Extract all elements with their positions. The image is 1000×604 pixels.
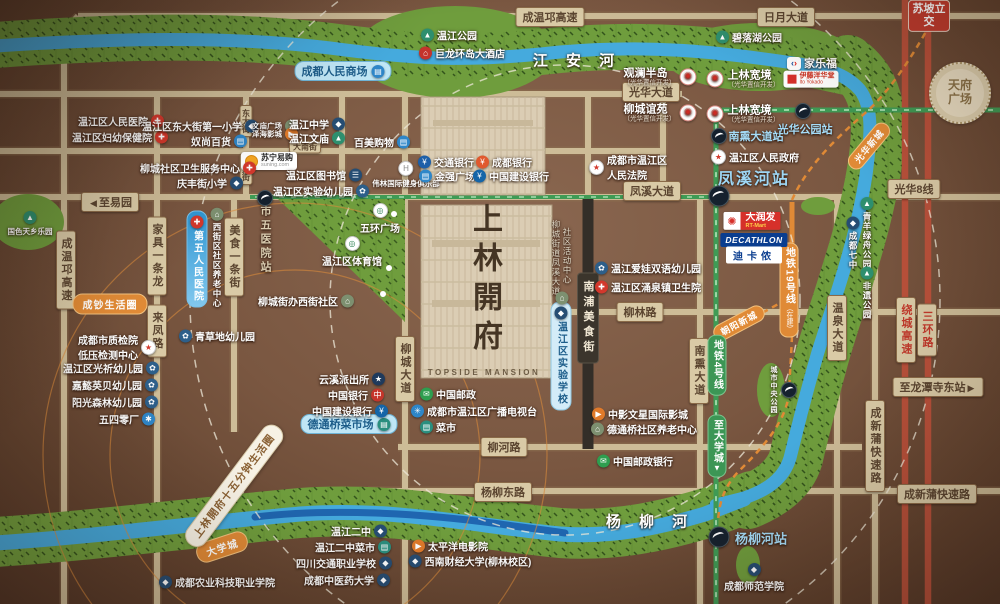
ccb-icon: ¥ <box>473 170 486 183</box>
road-fengxi-avenue: 凤溪大道 <box>623 181 681 201</box>
yunxi-police-station: 云溪派出所★ <box>319 372 385 387</box>
road-raocheng-expressway: 绕城高速 <box>896 297 916 363</box>
road-nanxun-avenue: 南熏大道 <box>689 338 709 404</box>
cdbank-icon: ¥ <box>476 156 489 169</box>
school-icon: ◆ <box>409 555 422 568</box>
river-yangliu-label: 杨 柳 河 <box>606 511 694 532</box>
chengdu-renmin-mall: 成都人民商场▤ <box>295 61 392 81</box>
kind-icon: ✿ <box>145 379 158 392</box>
decathlon: DECATHLON <box>720 233 787 247</box>
wenjiang-park: ▲温江公园 <box>421 28 477 43</box>
down-arrow-icon: ▼ <box>713 464 721 473</box>
metro-icon-fengxihe <box>709 186 730 207</box>
gov-icon: ★ <box>711 150 726 165</box>
yongquan-health-center: ✚温江区涌泉镇卫生院 <box>595 280 701 295</box>
guanlan-peninsula: 观澜半岛（光华置信开发）✺ <box>624 67 697 86</box>
wuhuan-square: ◎五环广场 <box>360 203 400 235</box>
wenjiang-no2-market: 温江二中菜市▤ <box>315 540 391 555</box>
school-icon: ◆ <box>377 574 390 587</box>
metro-icon-guanghua-park <box>795 103 811 119</box>
school-icon: ◆ <box>748 563 761 576</box>
julong-hotel: ⌂巨龙环岛大酒店 <box>419 46 505 61</box>
nushang-dept-store: 奴尚百货▤ <box>191 134 247 149</box>
river-jiangan-label: 江 安 河 <box>533 50 621 71</box>
fengxi-community-center-2: 社区活动中心 <box>561 228 573 285</box>
park-icon: ▲ <box>716 31 729 44</box>
china-post-bank: ✉中国邮政银行 <box>597 454 673 469</box>
kind-icon: ✿ <box>595 262 608 275</box>
fengxi-community-icon: ⌂ <box>556 292 569 305</box>
metro-line19-label: 地铁19号线（在建） <box>780 242 799 337</box>
ccb-icon: ¥ <box>375 405 388 418</box>
jiayi-yingbei-kindergarten: 嘉懿英贝幼儿园✿ <box>72 378 158 393</box>
map-canvas: 成温邛高速日月大道光华大道大南街凤溪大道光华8线柳林路柳河路杨柳东路成新蒲快速路… <box>0 0 1000 604</box>
road-guanghua-line8: 光华8线 <box>887 179 940 199</box>
sunshine-forest-kindergarten: 阳光森林幼儿园✿ <box>72 395 158 410</box>
library-icon: ☰ <box>349 169 362 182</box>
metro-icon-unnamed <box>781 382 797 398</box>
wenjiang-gymnasium: ◎温江区体育馆 <box>322 236 382 268</box>
feiyi-park: ▲非遗公园 <box>861 267 874 320</box>
chengdu-normal-university: ◆成都师范学院 <box>724 563 784 593</box>
detongqiao-elderly-center: ⌂德通桥社区养老中心 <box>591 422 697 437</box>
school-icon: ◆ <box>555 307 568 320</box>
road-chengxinpu-expressway-v: 成新蒲快速路 <box>865 400 885 492</box>
dikanon: 迪卡侬 <box>726 247 782 264</box>
rt-mart-logo-icon: ✺ <box>724 212 741 230</box>
dongdajie-first-primary: 温江区东大街第一小学◆ <box>142 119 258 134</box>
wenjiang-experimental-kindergarten: 温江区实验幼儿园✿ <box>273 184 369 199</box>
station-nanxun-avenue: 南熏大道站 <box>729 128 784 144</box>
qingfengjie-primary: 庆丰街小学◆ <box>177 176 243 191</box>
shop-icon: ▤ <box>372 65 385 78</box>
post-icon: ✉ <box>420 388 433 401</box>
road-chengwenqiong-top: 成温邛高速 <box>516 7 585 27</box>
wenjiang-court: ★成都市温江区 人民法院 <box>589 152 667 182</box>
kind-icon: ✿ <box>145 396 158 409</box>
gym-icon: H <box>399 161 414 176</box>
to-daxuecheng: 至大学城▼ <box>708 415 727 478</box>
qingyang-lvzhou-park: ▲青羊绿舟公园 <box>861 197 874 269</box>
rt-mart: ✺大润发RT-Mart <box>724 212 781 230</box>
carrefour-logo-icon: ‹› <box>791 59 797 68</box>
liucheng-health-center: 柳城社区卫生服务中心✚ <box>140 161 256 176</box>
wenjiang-middle-school: 温江中学◆ <box>289 117 345 132</box>
factory-540: 五四零厂✱ <box>99 412 155 427</box>
station-guanghua-park: 光华公园站 <box>778 121 833 137</box>
shop-icon: ▤ <box>419 170 432 183</box>
metro-line4-label: 地铁4号线 <box>708 335 727 396</box>
school-icon: ◆ <box>374 525 387 538</box>
station-shiwu-hospital: 市五医院站 <box>257 205 273 275</box>
project-name: 上林開府TOPSIDE MANSION <box>428 203 540 377</box>
bank-of-china: 中国银行中 <box>328 388 384 403</box>
chengdu-agri-vocational: ◆成都农业科技职业学院 <box>159 575 275 590</box>
tianfu-square: 天府广场 <box>929 62 991 124</box>
school-icon: ◆ <box>332 118 345 131</box>
boc-icon: 中 <box>371 389 384 402</box>
metro-icon-shiwu <box>257 190 273 206</box>
label-layer: 成温邛高速日月大道光华大道大南街凤溪大道光华8线柳林路柳河路杨柳东路成新蒲快速路… <box>0 0 1000 604</box>
quality-inspection-center: 成都市质检院 低压检测中心★ <box>78 332 156 362</box>
hospital-icon: ✚ <box>191 216 204 229</box>
rings-icon: ◎ <box>373 203 388 218</box>
wenjiang-tv-station: ✳成都市温江区广播电视台 <box>411 404 537 419</box>
school-icon: ◆ <box>379 557 392 570</box>
metro-icon-yangliuhe <box>709 527 730 548</box>
kind-icon: ✿ <box>146 362 159 375</box>
school-icon: ◆ <box>847 217 860 230</box>
road-liulin-road: 柳林路 <box>617 302 664 322</box>
xijie-elderly-center: ⌂西街区社区养老中心 <box>211 208 224 309</box>
right-arrow-icon: ▶ <box>968 383 975 393</box>
park-icon: ▲ <box>861 267 874 280</box>
road-liuhe-road: 柳河路 <box>481 437 528 457</box>
hospital-icon: ✚ <box>595 281 608 294</box>
zhongying-wenxing-cinema: ▶中影文星国际影城 <box>592 407 688 422</box>
ccb-north: ¥中国建设银行 <box>473 169 549 184</box>
police-icon: ★ <box>372 373 385 386</box>
wenjiang-no2-middle: 温江二中◆ <box>331 524 387 539</box>
comm-icon: ⌂ <box>211 208 224 221</box>
park-icon: ▲ <box>421 29 434 42</box>
comm-icon: ⌂ <box>591 423 604 436</box>
chengdu-no7-school: ◆成都七中 <box>847 217 860 270</box>
fifth-peoples-hospital: ✚第五人民医院 <box>187 211 208 308</box>
road-meishi-street: 美食一条街 <box>224 218 244 297</box>
tv-icon: ✳ <box>411 405 424 418</box>
park-icon: ▲ <box>332 132 345 145</box>
road-liucheng-avenue: 柳城大道 <box>395 336 415 402</box>
cinema-icon: ▶ <box>412 540 425 553</box>
jinqiang-plaza: ▤金强广场 <box>419 169 475 184</box>
qingcaodi-kindergarten: ✿青草地幼儿园 <box>179 329 255 344</box>
swufe-liulin-campus: ◆西南财经大学(柳林校区) <box>409 554 532 569</box>
school-icon: ◆ <box>230 177 243 190</box>
supo-interchange: 苏坡立交 <box>908 0 950 32</box>
hotel-icon: ⌂ <box>419 47 432 60</box>
wenjiang-library: 温江区图书馆☰ <box>286 168 362 183</box>
road-to-longtansi-east: 至龙潭寺东站▶ <box>893 377 984 397</box>
chengdu-tcm-university: 成都中医药大学◆ <box>304 573 390 588</box>
rings-icon: ◎ <box>345 236 360 251</box>
baimei-shopping: 百美购物▤ <box>354 135 410 150</box>
kind-icon: ✿ <box>179 330 192 343</box>
guose-tianxiang-park: ▲国色天乡乐园 <box>8 211 53 237</box>
court-icon: ★ <box>589 160 604 175</box>
market-icon: ▤ <box>378 418 391 431</box>
liucheng-yiyuan: 柳城谊苑（光华置信开发）✺ <box>624 103 697 122</box>
market-icon: ▤ <box>378 541 391 554</box>
station-yangliuhe: 杨柳河站 <box>735 529 787 548</box>
cinema-icon: ▶ <box>592 408 605 421</box>
shanglin-kuanjing-2: ✺上林宽境（光华置信开发） <box>707 104 780 123</box>
post-icon: ✉ <box>597 455 610 468</box>
road-riyue-avenue: 日月大道 <box>757 7 815 27</box>
china-post: ✉中国邮政 <box>420 387 476 402</box>
ccb-south: 中国建设银行¥ <box>312 404 388 419</box>
city-central-park: 城市中央公园 <box>768 366 778 414</box>
road-jiaju-street: 家具一条龙 <box>147 217 167 296</box>
station-fengxihe: 凤溪河站 <box>718 165 790 189</box>
park-icon: ▲ <box>861 197 874 210</box>
guangqi-kindergarten: 温江区光祈幼儿园✿ <box>63 361 159 376</box>
bank-of-communications: ¥交通银行 <box>418 155 474 170</box>
road-to-yiyuan: ◀至易园 <box>81 192 139 212</box>
shop-icon: ▤ <box>397 136 410 149</box>
guanghua-zhixin-logo-icon: ✺ <box>707 70 724 87</box>
caishi-market: ▤菜市 <box>420 420 456 435</box>
carrefour: ‹›家乐福 <box>787 55 837 71</box>
metro-icon-nanxun <box>711 128 727 144</box>
left-arrow-icon: ◀ <box>90 198 97 208</box>
comm-icon: ⌂ <box>341 295 354 308</box>
biluohu-park: ▲碧落湖公园 <box>716 30 782 45</box>
ito-yokado: 伊藤洋华堂Ito Yokado <box>784 71 839 88</box>
chengchao-life-circle: 成钞生活圈 <box>73 294 148 315</box>
pacific-cinema: ▶太平洋电影院 <box>412 539 488 554</box>
road-yangliu-east-road: 杨柳东路 <box>474 482 532 502</box>
kind-icon: ✿ <box>356 185 369 198</box>
road-chengxinpu-expressway-h: 成新蒲快速路 <box>897 484 977 504</box>
wenjiang-government: ★温江区人民政府 <box>711 150 799 165</box>
shanglin-kuanjing-1: ✺上林宽境（光华置信开发） <box>707 69 780 88</box>
guanghua-zhixin-logo-icon: ✺ <box>680 104 697 121</box>
aiwa-bilingual-kindergarten: ✿温江爱娃双语幼儿园 <box>595 261 701 276</box>
bocom-icon: ¥ <box>418 156 431 169</box>
market-icon: ▤ <box>420 421 433 434</box>
road-wenquan-avenue: 温泉大道 <box>827 295 847 361</box>
ito-yokado-logo-icon <box>788 75 797 84</box>
sichuan-comm-vocational: 四川交通职业学校◆ <box>296 556 392 571</box>
school-icon: ◆ <box>159 576 172 589</box>
factory-icon: ✱ <box>142 413 155 426</box>
guanghua-new-town: 光华新城 <box>844 119 893 173</box>
wenjiang-confucian-temple: 温江文庙▲ <box>289 131 345 146</box>
wenjiang-experimental-school: ◆温江区实验学校 <box>551 302 572 411</box>
liucheng-xijie-community: 柳城街办西街社区⌂ <box>258 294 354 309</box>
hospital-icon: ✚ <box>243 162 256 175</box>
guanghua-zhixin-logo-icon: ✺ <box>680 68 697 85</box>
comm-icon: ⌂ <box>556 292 569 305</box>
road-sanhuan-road: 三环路 <box>917 304 937 357</box>
gov-icon: ★ <box>141 340 156 355</box>
guanghua-zhixin-logo-icon: ✺ <box>707 105 724 122</box>
park-icon: ▲ <box>24 211 37 224</box>
shop-icon: ▤ <box>234 135 247 148</box>
bank-of-chengdu: ¥成都银行 <box>476 155 532 170</box>
